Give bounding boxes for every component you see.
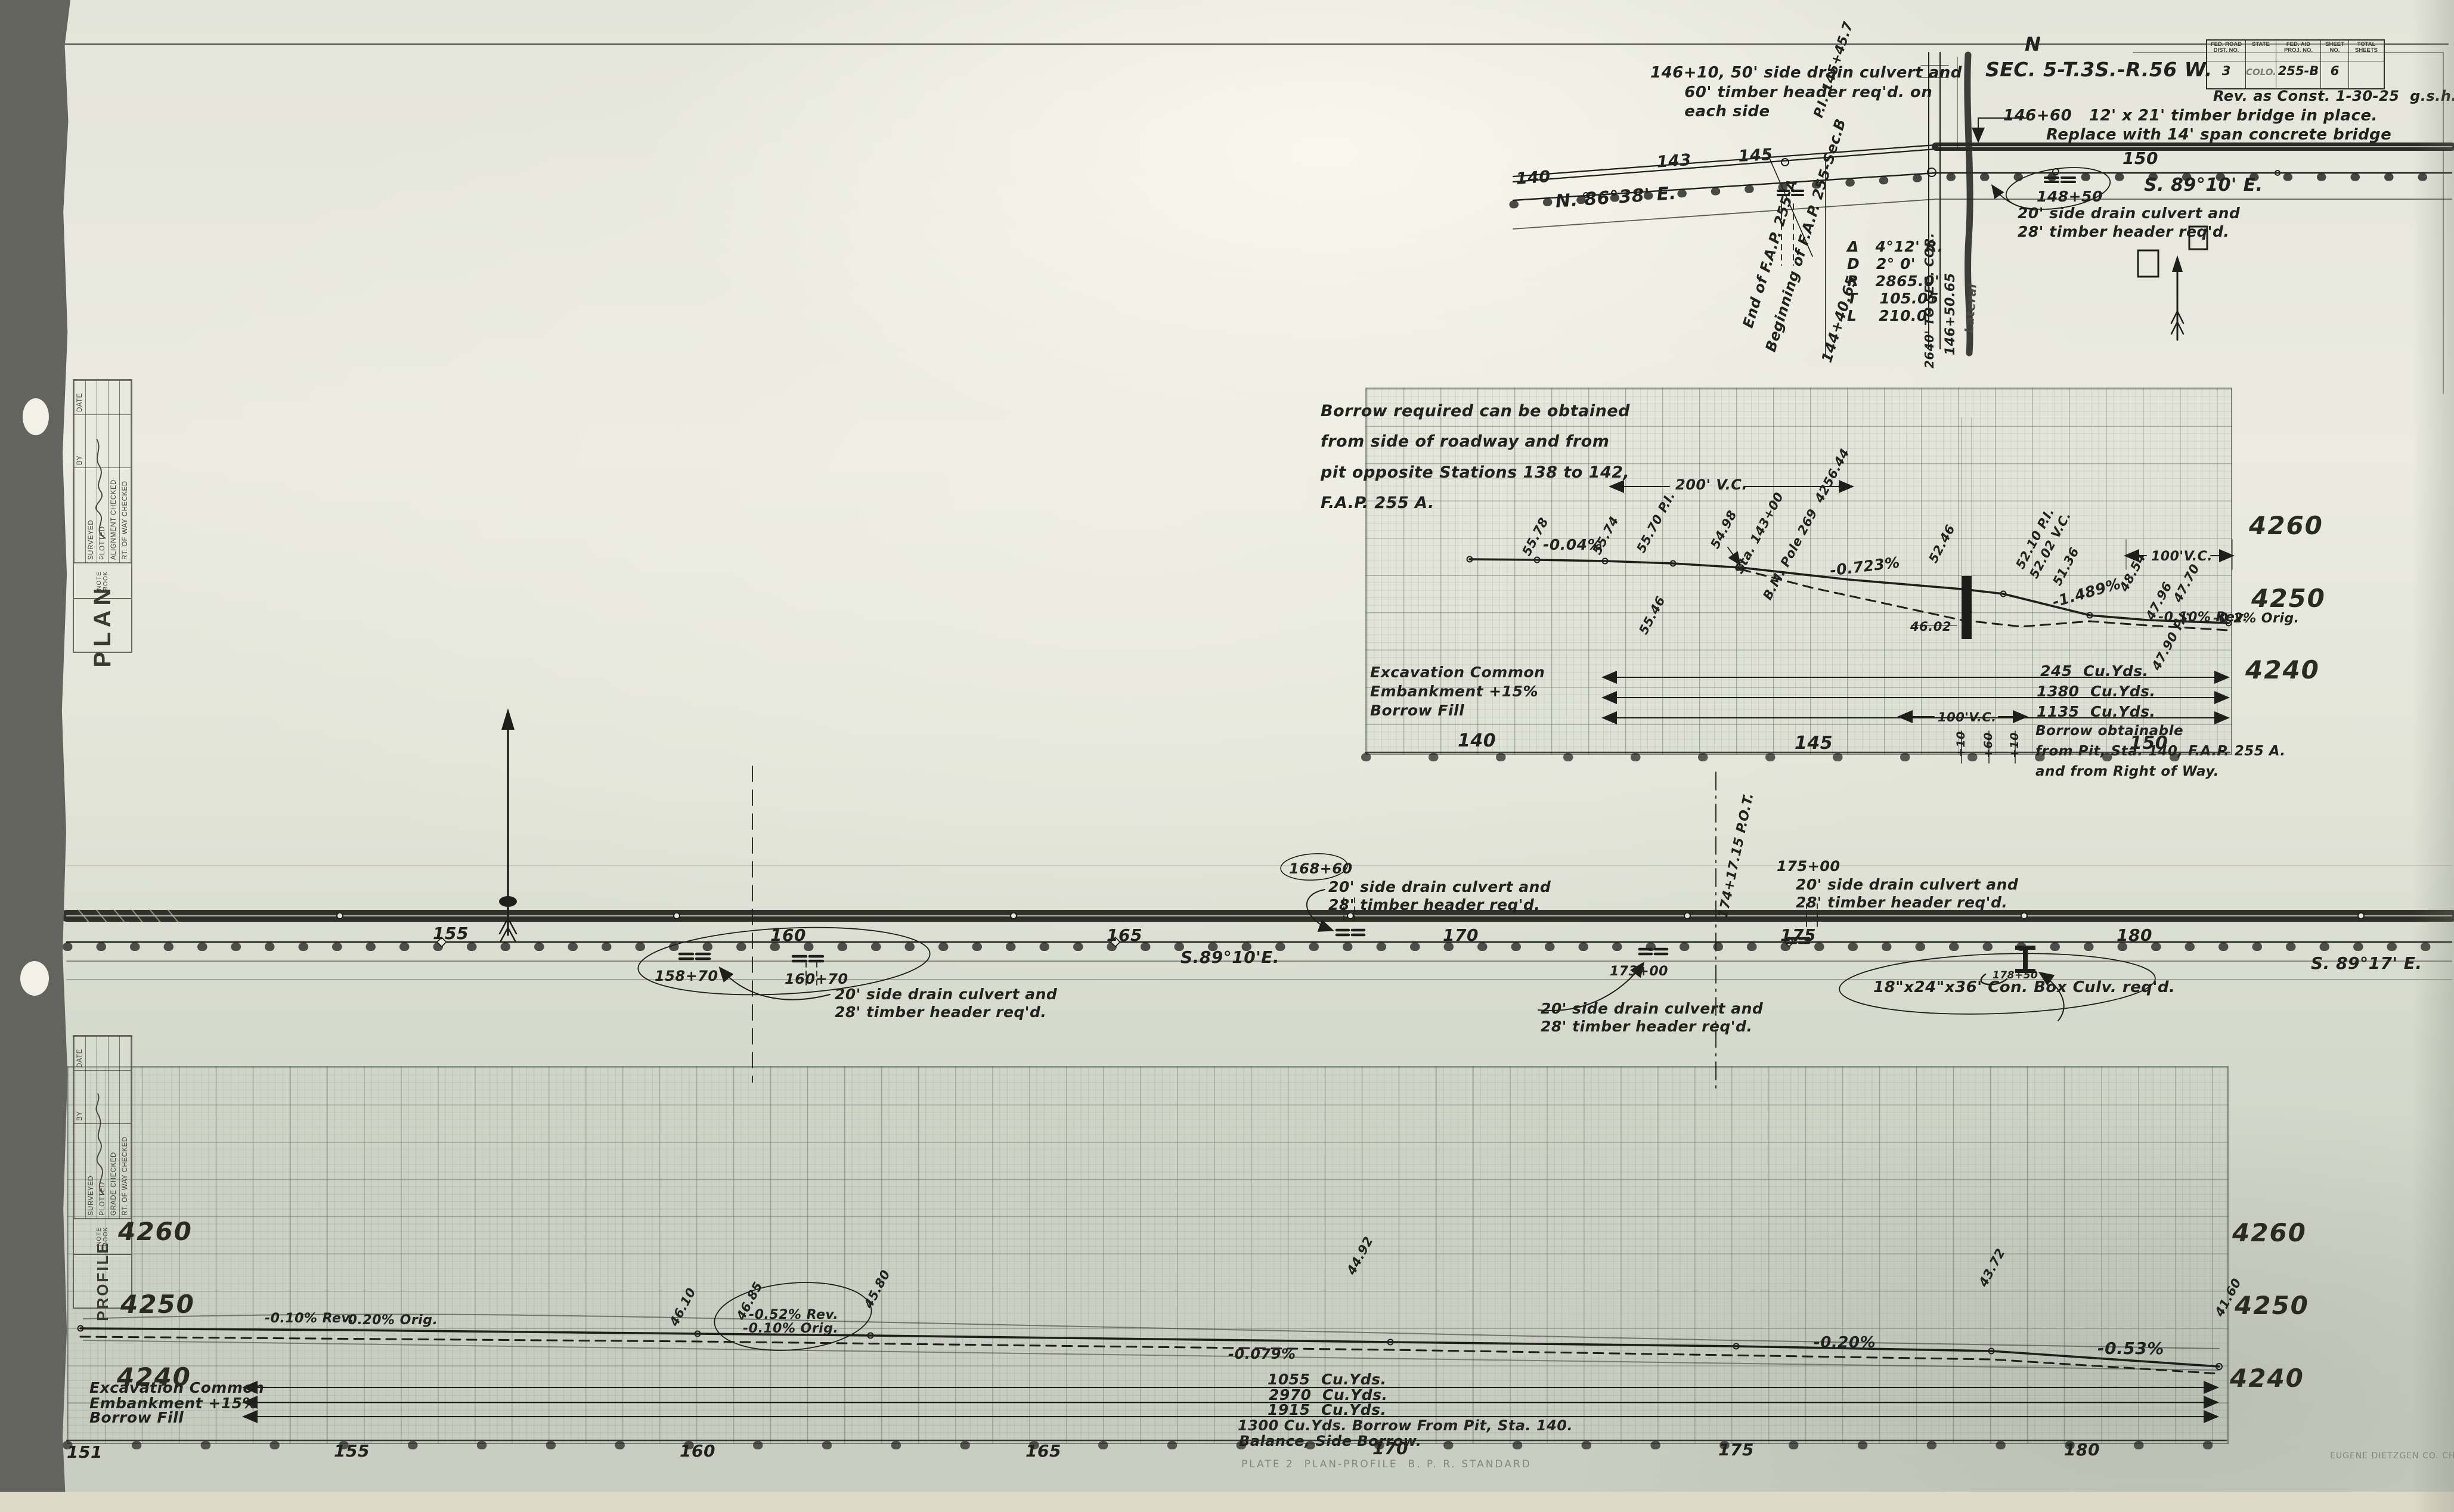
- lower-axis-right-4260: 4260: [2232, 1217, 2307, 1249]
- paper-bottom-edge: [0, 1492, 2454, 1512]
- plan-sta-148-50: 148+50: [2037, 187, 2103, 206]
- bearing-n8638: N. 86°38' E.: [1555, 182, 1677, 213]
- lower-sta-180: 180: [2064, 1439, 2100, 1460]
- mid-sta-173-00: 173+00: [1610, 963, 1668, 980]
- fed-aid-proj-value: 255-B: [2276, 61, 2320, 85]
- grade-b-0079: -0.079%: [1228, 1345, 1296, 1363]
- lower-sta-170: 170: [1372, 1438, 1408, 1459]
- upper-sta-145: 145: [1795, 732, 1833, 755]
- upper-sta-140: 140: [1458, 730, 1496, 752]
- bearing-s8917: S. 89°17' E.: [2311, 953, 2422, 974]
- mid-sta-165: 165: [1107, 925, 1142, 946]
- title-col-header: TOTAL SHEETS: [2349, 41, 2384, 61]
- legend-upper-borrow: Borrow Fill: [1370, 701, 1464, 720]
- mid-note-160-1: 20' side drain culvert and: [835, 985, 1057, 1003]
- borrow-note: Borrow required can be obtained from sid…: [1321, 396, 1630, 518]
- by-header: BY: [75, 415, 86, 468]
- mid-sta-158-70: 158+70: [655, 967, 718, 985]
- signature-squiggle: [85, 434, 114, 541]
- offset-plus60: +60: [1982, 732, 1996, 758]
- paper-hole: [20, 961, 49, 996]
- plan-stamp: PLAN NOTE BOOK BYDATE SURVEYED PLOTTED A…: [73, 379, 132, 653]
- mid-sta-170: 170: [1443, 925, 1479, 946]
- mid-note-175-2: 28' timber header req'd.: [1796, 893, 2007, 912]
- lower-sta-175: 175: [1718, 1439, 1754, 1460]
- mid-note-173-2: 28' timber header req'd.: [1541, 1017, 1752, 1036]
- elev-4602: 46.02: [1910, 619, 1951, 634]
- mid-note-173-1: 20' side drain culvert and: [1541, 999, 1763, 1018]
- lower-axis-right-4250: 4250: [2235, 1290, 2309, 1322]
- vc-100-upper: 100'V.C.: [2151, 549, 2213, 565]
- plate-credit: PLATE 2 PLAN-PROFILE B. P. R. STANDARD: [1241, 1458, 1532, 1471]
- note-culvert-146-10: 146+10, 50' side drain culvert and 60' t…: [1650, 63, 1962, 122]
- title-col-header: FED. ROAD DIST. NO.: [2207, 41, 2245, 61]
- mid-sta-168-60: 168+60: [1289, 860, 1353, 878]
- title-col-header: STATE: [2246, 41, 2276, 61]
- date-header: DATE: [75, 381, 86, 415]
- plan-sta-140: 140: [1516, 167, 1551, 190]
- lower-sta-160: 160: [680, 1440, 715, 1461]
- upper-axis-4260: 4260: [2249, 510, 2323, 542]
- upper-sta-150: 150: [2130, 732, 2168, 755]
- total-sheets-value: [2349, 61, 2384, 85]
- north-arrow-icon: [2171, 255, 2183, 340]
- grade-b-010-rev: -0.10% Rev.: [265, 1310, 354, 1327]
- plan-stamp-title: PLAN: [74, 598, 131, 652]
- grade-b-020: -0.20%: [1814, 1333, 1876, 1353]
- lower-axis-right-4240: 4240: [2230, 1363, 2304, 1395]
- paper-hole: [23, 398, 49, 435]
- title-block: FED. ROAD DIST. NO.3 STATECOLO. FED. AID…: [2206, 39, 2385, 89]
- upper-axis-4240: 4240: [2245, 655, 2320, 686]
- sec-cor-note: 2640' TO SEC. COR.: [1922, 233, 1937, 368]
- grade-b-020-orig: -0.20% Orig.: [342, 1312, 438, 1329]
- north-letter: N: [2025, 32, 2041, 56]
- stamp-row-label: RT. OF WAY CHECKED: [120, 468, 131, 563]
- mid-note-168-2: 28' timber header req'd.: [1328, 896, 1540, 914]
- bearing-s8910-mid: S.89°10'E.: [1180, 947, 1279, 968]
- bearing-s8910-top: S. 89°10' E.: [2144, 174, 2263, 197]
- mid-sta-175-00: 175+00: [1777, 857, 1840, 875]
- fed-road-dist-value: 3: [2207, 61, 2245, 85]
- lower-sta-151: 151: [67, 1442, 103, 1463]
- borrow-obtainable-3: and from Right of Way.: [2035, 763, 2219, 780]
- lateral-label: Lateral: [1962, 283, 1980, 334]
- offset-plus10-a: +10: [1954, 731, 1969, 757]
- date-header: DATE: [75, 1037, 86, 1071]
- mid-note-175-1: 20' side drain culvert and: [1796, 875, 2018, 894]
- mid-sta-160: 160: [770, 925, 806, 946]
- note-bridge-line1: 146+60 12' x 21' timber bridge in place.: [2003, 106, 2378, 126]
- offset-plus10-b: +10: [2008, 732, 2022, 758]
- lower-axis-left-4260: 4260: [118, 1216, 193, 1248]
- legend-upper-embankment: Embankment +15%: [1370, 682, 1538, 701]
- scanned-plan-profile-sheet: { "sheet": { "title_block": { "headers":…: [0, 0, 2454, 1512]
- grade-b-010-orig: -0.10% Orig.: [743, 1321, 838, 1337]
- mid-sta-175: 175: [1780, 925, 1816, 946]
- mid-sta-180: 180: [2117, 925, 2152, 946]
- paper-sheet: FED. ROAD DIST. NO.3 STATECOLO. FED. AID…: [0, 0, 2454, 1512]
- state-value: COLO.: [2246, 61, 2276, 88]
- lower-sta-165: 165: [1025, 1440, 1061, 1461]
- vc-100-lower: 100'V.C.: [1938, 709, 1997, 725]
- paper-edge-shadow: [2412, 0, 2454, 1512]
- qty-1380: 1380 Cu.Yds.: [2037, 682, 2156, 701]
- upper-axis-4250: 4250: [2251, 583, 2326, 615]
- title-col-header: FED. AID PROJ. NO.: [2276, 41, 2320, 61]
- plan-sta-143: 143: [1656, 150, 1692, 173]
- signature-squiggle: [85, 1090, 114, 1197]
- legend-lower-borrow: Borrow Fill: [89, 1408, 184, 1427]
- mid-note-box-culvert: 18"x24"x36' Con. Box Culv. req'd.: [1873, 978, 2175, 997]
- curve-d: D 2° 0': [1847, 255, 1916, 273]
- qty-1135: 1135 Cu.Yds.: [2037, 702, 2156, 721]
- curve-l: L 210.0': [1847, 306, 1932, 325]
- plan-stamp-notebook: NOTE BOOK: [74, 563, 131, 598]
- stamp-row-label: RT. OF WAY CHECKED: [120, 1124, 131, 1219]
- lower-axis-left-4250: 4250: [120, 1289, 195, 1321]
- mid-note-160-2: 28' timber header req'd.: [835, 1003, 1046, 1021]
- grade-b-053: -0.53%: [2097, 1338, 2164, 1359]
- plan-sta-150: 150: [2123, 148, 2158, 169]
- profile-stamp: PROFILE NOTE BOOK BYDATE SURVEYED PLOTTE…: [73, 1035, 132, 1309]
- legend-upper-excavation: Excavation Common: [1370, 663, 1545, 681]
- note-culvert-148-50: 20' side drain culvert and 28' timber he…: [2018, 204, 2240, 241]
- lower-sta-155: 155: [334, 1440, 370, 1461]
- mid-note-168-1: 20' side drain culvert and: [1328, 878, 1551, 896]
- sheet-no-value: 6: [2321, 61, 2348, 85]
- binding-edge: [0, 0, 70, 1512]
- sta-146-5065: 146+50.65: [1942, 273, 1959, 355]
- section-label: SEC. 5-T.3S.-R.56 W.: [1985, 57, 2213, 82]
- by-header: BY: [75, 1071, 86, 1124]
- range-arrow-icon: [499, 708, 517, 941]
- qty-245: 245 Cu.Yds.: [2040, 662, 2149, 680]
- mid-sta-155: 155: [433, 923, 469, 944]
- title-col-header: SHEET NO.: [2321, 41, 2348, 61]
- plan-sta-145: 145: [1738, 145, 1774, 167]
- note-bridge-line2: Replace with 14' span concrete bridge: [2046, 125, 2391, 145]
- vc-200-label: 200' V.C.: [1675, 476, 1747, 494]
- lower-profile-grid: [67, 1066, 2229, 1444]
- pot-174-1715: 174+17.15 P.O.T.: [1715, 791, 1758, 920]
